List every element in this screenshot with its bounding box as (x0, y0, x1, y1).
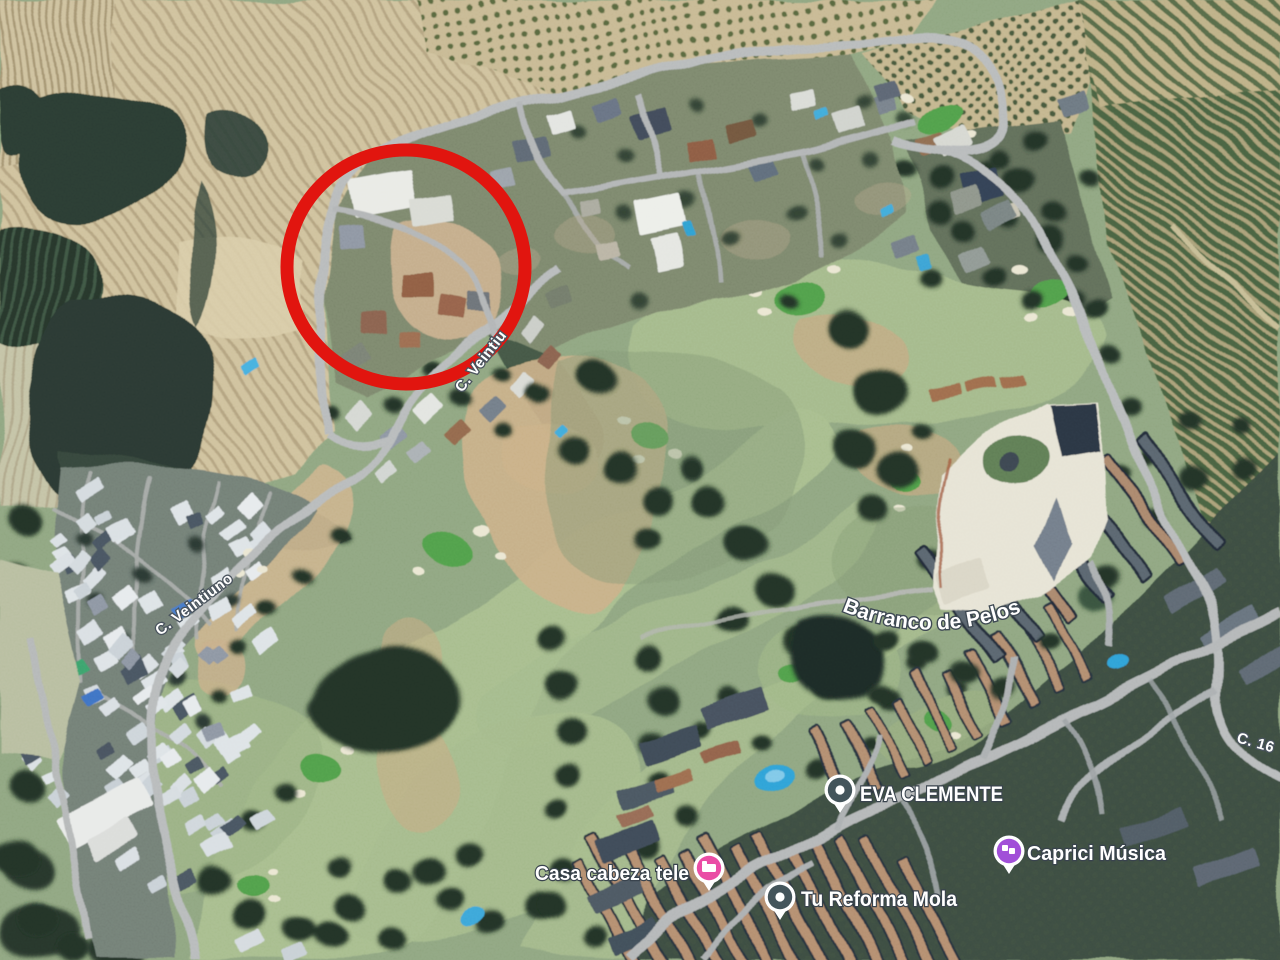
svg-text:Casa cabeza tele: Casa cabeza tele (535, 863, 689, 885)
svg-text:Caprici Música: Caprici Música (1027, 843, 1167, 865)
svg-text:Tu Reforma Mola: Tu Reforma Mola (801, 888, 957, 911)
svg-text:EVA CLEMENTE: EVA CLEMENTE (860, 783, 1003, 806)
